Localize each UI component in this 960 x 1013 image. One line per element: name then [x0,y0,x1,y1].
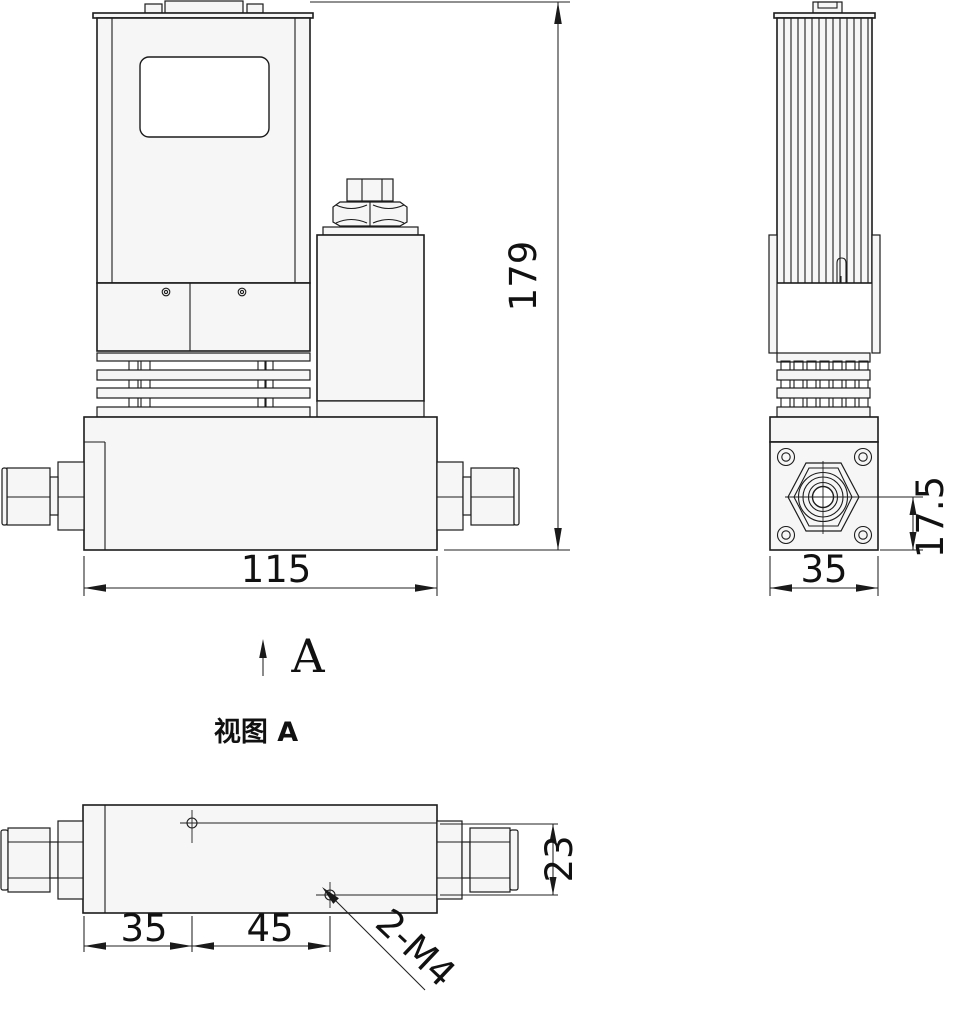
engineering-drawing-sheet: 179 115 35 17.5 23 35 45 2-M4 [0,0,960,1013]
dim-text-45-bottom: 45 [246,907,293,950]
dim-text-179: 179 [502,241,545,312]
display-window [140,57,269,137]
inlet-fitting [2,462,84,530]
valve-flange [323,227,418,235]
dim-text-35-bottom: 35 [120,907,167,950]
valve-coil-body [317,235,424,401]
dim-text-23: 23 [538,835,581,882]
view-a-bottom-view [1,805,518,913]
base-collar-side [770,417,878,442]
housing-wall-right [872,235,880,353]
outlet-fitting [437,462,519,530]
outlet-fitting-bottom [437,821,518,899]
view-direction-letter: A [290,629,325,683]
housing-wall-left [769,235,777,353]
electronics-base-block [97,283,310,351]
flow-base-block [84,417,437,550]
base-block-bottom [83,805,437,913]
dim-text-17-5: 17.5 [909,476,952,558]
view-a-caption: 视图 A [214,717,298,748]
inlet-fitting-bottom [1,821,83,899]
dim-text-35-side: 35 [800,548,847,591]
dim-text-115: 115 [241,548,312,591]
valve-adjustment-cap [347,179,393,201]
valve-base [317,401,424,417]
